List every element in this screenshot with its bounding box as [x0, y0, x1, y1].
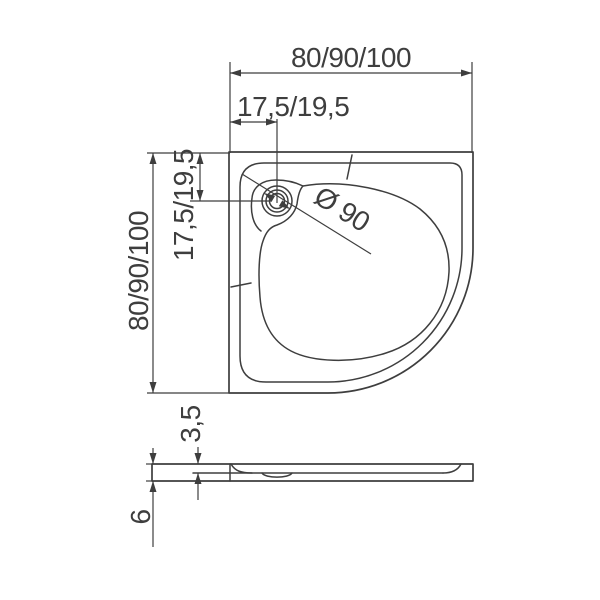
arrowhead: [150, 481, 157, 492]
arrowhead: [150, 153, 157, 164]
arrowhead: [195, 473, 202, 484]
molding-tick-left: [231, 283, 251, 287]
drain-offset-vertical-label: 17,5/19,5: [168, 149, 199, 261]
shower-tray-technical-drawing: 80/90/100 17,5/19,5 80/90/100 17,5/19,5: [0, 0, 600, 600]
section-total-height-label: 6: [125, 509, 156, 524]
plan-height-dimension-label: 80/90/100: [123, 211, 154, 331]
drain-diameter-label: Ø 90: [309, 180, 375, 237]
section-rim-slope: [231, 464, 252, 473]
plan-dimensions: 80/90/100 17,5/19,5 80/90/100 17,5/19,5: [123, 42, 472, 393]
arrowhead: [230, 70, 241, 77]
drain-offset-horizontal-label: 17,5/19,5: [237, 91, 349, 122]
arrowhead: [150, 453, 157, 464]
section-dimensions: 3,5 6: [125, 405, 206, 547]
arrowhead: [195, 453, 202, 464]
section-rim-height-label: 3,5: [175, 405, 206, 442]
plan-width-dimension-label: 80/90/100: [291, 42, 411, 73]
arrowhead: [150, 382, 157, 393]
section-rim-rise: [443, 464, 461, 473]
arrowhead: [461, 70, 472, 77]
drawing-canvas: 80/90/100 17,5/19,5 80/90/100 17,5/19,5: [0, 0, 600, 600]
section-view: [146, 464, 473, 481]
molding-tick-top: [347, 155, 352, 179]
